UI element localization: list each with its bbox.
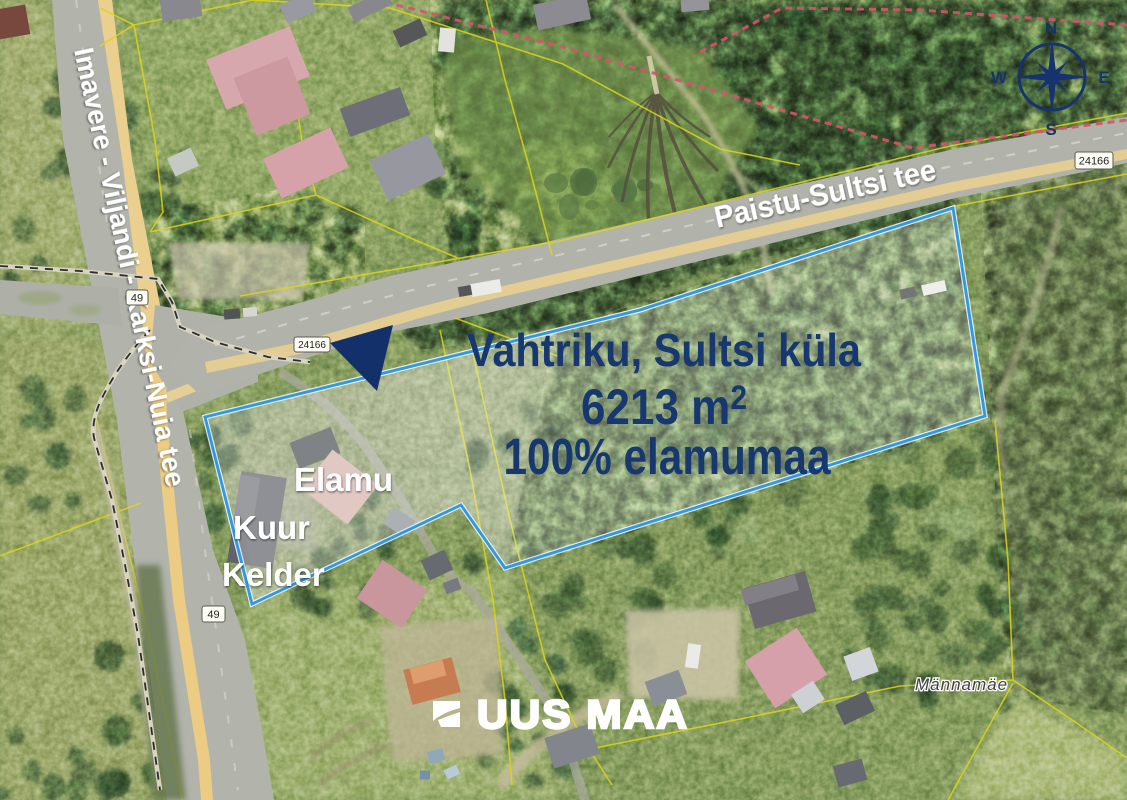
- svg-text:Kuur: Kuur: [233, 509, 310, 546]
- svg-text:24166: 24166: [298, 340, 326, 351]
- svg-text:UUS MAA: UUS MAA: [477, 693, 689, 737]
- svg-text:6213 m2: 6213 m2: [581, 379, 747, 435]
- svg-text:W: W: [991, 68, 1008, 87]
- svg-text:24166: 24166: [1079, 155, 1110, 167]
- svg-text:49: 49: [131, 292, 143, 304]
- svg-text:Männamäe: Männamäe: [915, 675, 1008, 694]
- svg-text:S: S: [1045, 120, 1056, 139]
- svg-text:Vahtriku, Sultsi küla: Vahtriku, Sultsi küla: [467, 324, 861, 376]
- svg-text:N: N: [1045, 19, 1057, 38]
- svg-text:Kelder: Kelder: [222, 556, 325, 593]
- svg-text:E: E: [1098, 68, 1109, 87]
- svg-text:100% elamumaa: 100% elamumaa: [504, 428, 832, 485]
- svg-text:49: 49: [207, 609, 219, 621]
- svg-text:Elamu: Elamu: [294, 461, 393, 498]
